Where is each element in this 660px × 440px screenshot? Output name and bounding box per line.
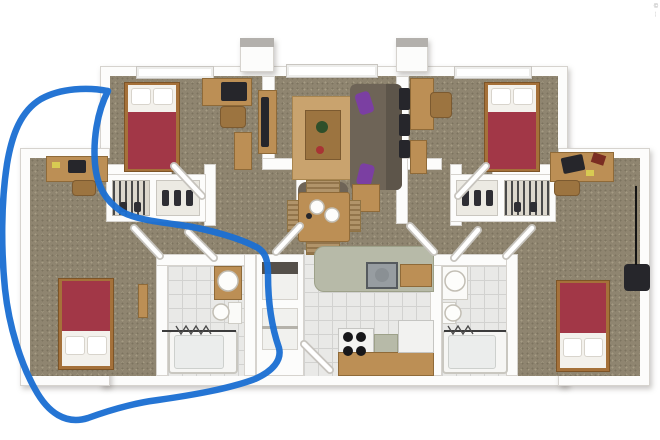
kitchen-base-cabinets [338,352,434,376]
dresser-bed2 [410,140,427,174]
bathtub-left-basin [174,335,224,369]
shoe-pair [134,202,141,212]
floorplan-image: ©… [0,0,660,440]
bathtub-right-basin [448,335,496,369]
watermark-text: ©… [652,4,659,18]
entry-stub-left-cap [240,38,274,47]
linen-upper-shadow [262,262,298,274]
chair-bed4 [554,180,580,196]
dining-table [298,192,350,242]
chair-bed1 [220,106,246,128]
wall-bath-left-top [156,254,256,266]
shoe-pair [174,190,181,206]
shoe-pair [486,190,493,206]
linen-shelf [262,326,298,329]
window-bed2 [454,66,532,79]
shelf-item [399,88,410,110]
laptop-bed3 [68,160,86,173]
toilet-tank-right [442,302,456,324]
wall-bath-left-outer [156,254,168,376]
chair-bed2 [430,92,452,118]
dresser-bed3 [138,284,148,318]
bed2-pillow [491,88,511,105]
shelf-item [399,114,410,136]
shoe-pair [162,190,169,206]
shoe-pair [462,190,469,206]
shoe-pair [530,202,537,212]
closet-right-clothes [504,180,550,216]
monitor-bed1 [221,82,247,101]
bed4-pillow [563,338,582,357]
vanity-bath-left [214,266,242,300]
coffee-tray [305,110,341,160]
toilet-tank-left [228,302,242,324]
bed2-pillow [513,88,533,105]
desk-item-yellow [52,162,60,168]
shoe-pair [514,202,521,212]
bed4-pillow [584,338,603,357]
bed1-pillow [153,88,173,105]
note-bed4 [586,170,594,176]
chair-bed3 [72,180,96,196]
vanity-bath-right [442,266,468,300]
bed1-blanket [128,112,176,169]
fridge [398,320,434,353]
bed2-blanket [488,112,536,169]
wall-bath-left-right [244,254,256,376]
bed3-pillow [87,336,107,355]
shoe-pair [120,202,127,212]
linen-lower-cell [262,308,298,350]
kitchen-sink [366,262,398,289]
dresser-bed1 [234,132,252,170]
kitchen-cabinet-upper [400,264,432,287]
tv [261,97,269,147]
closet-left-clothes [112,180,150,216]
shoe-pair [474,190,481,206]
wall-bath-right-top [430,254,518,266]
shoe-pair [186,190,193,206]
bed3-blanket [62,281,110,331]
shelf-item [399,140,410,158]
bed4-blanket [560,283,606,333]
entry-stub-right-cap [396,38,428,47]
bed1-pillow [131,88,151,105]
window-living [286,64,378,78]
utility-box [624,264,650,291]
bed3-pillow [65,336,85,355]
